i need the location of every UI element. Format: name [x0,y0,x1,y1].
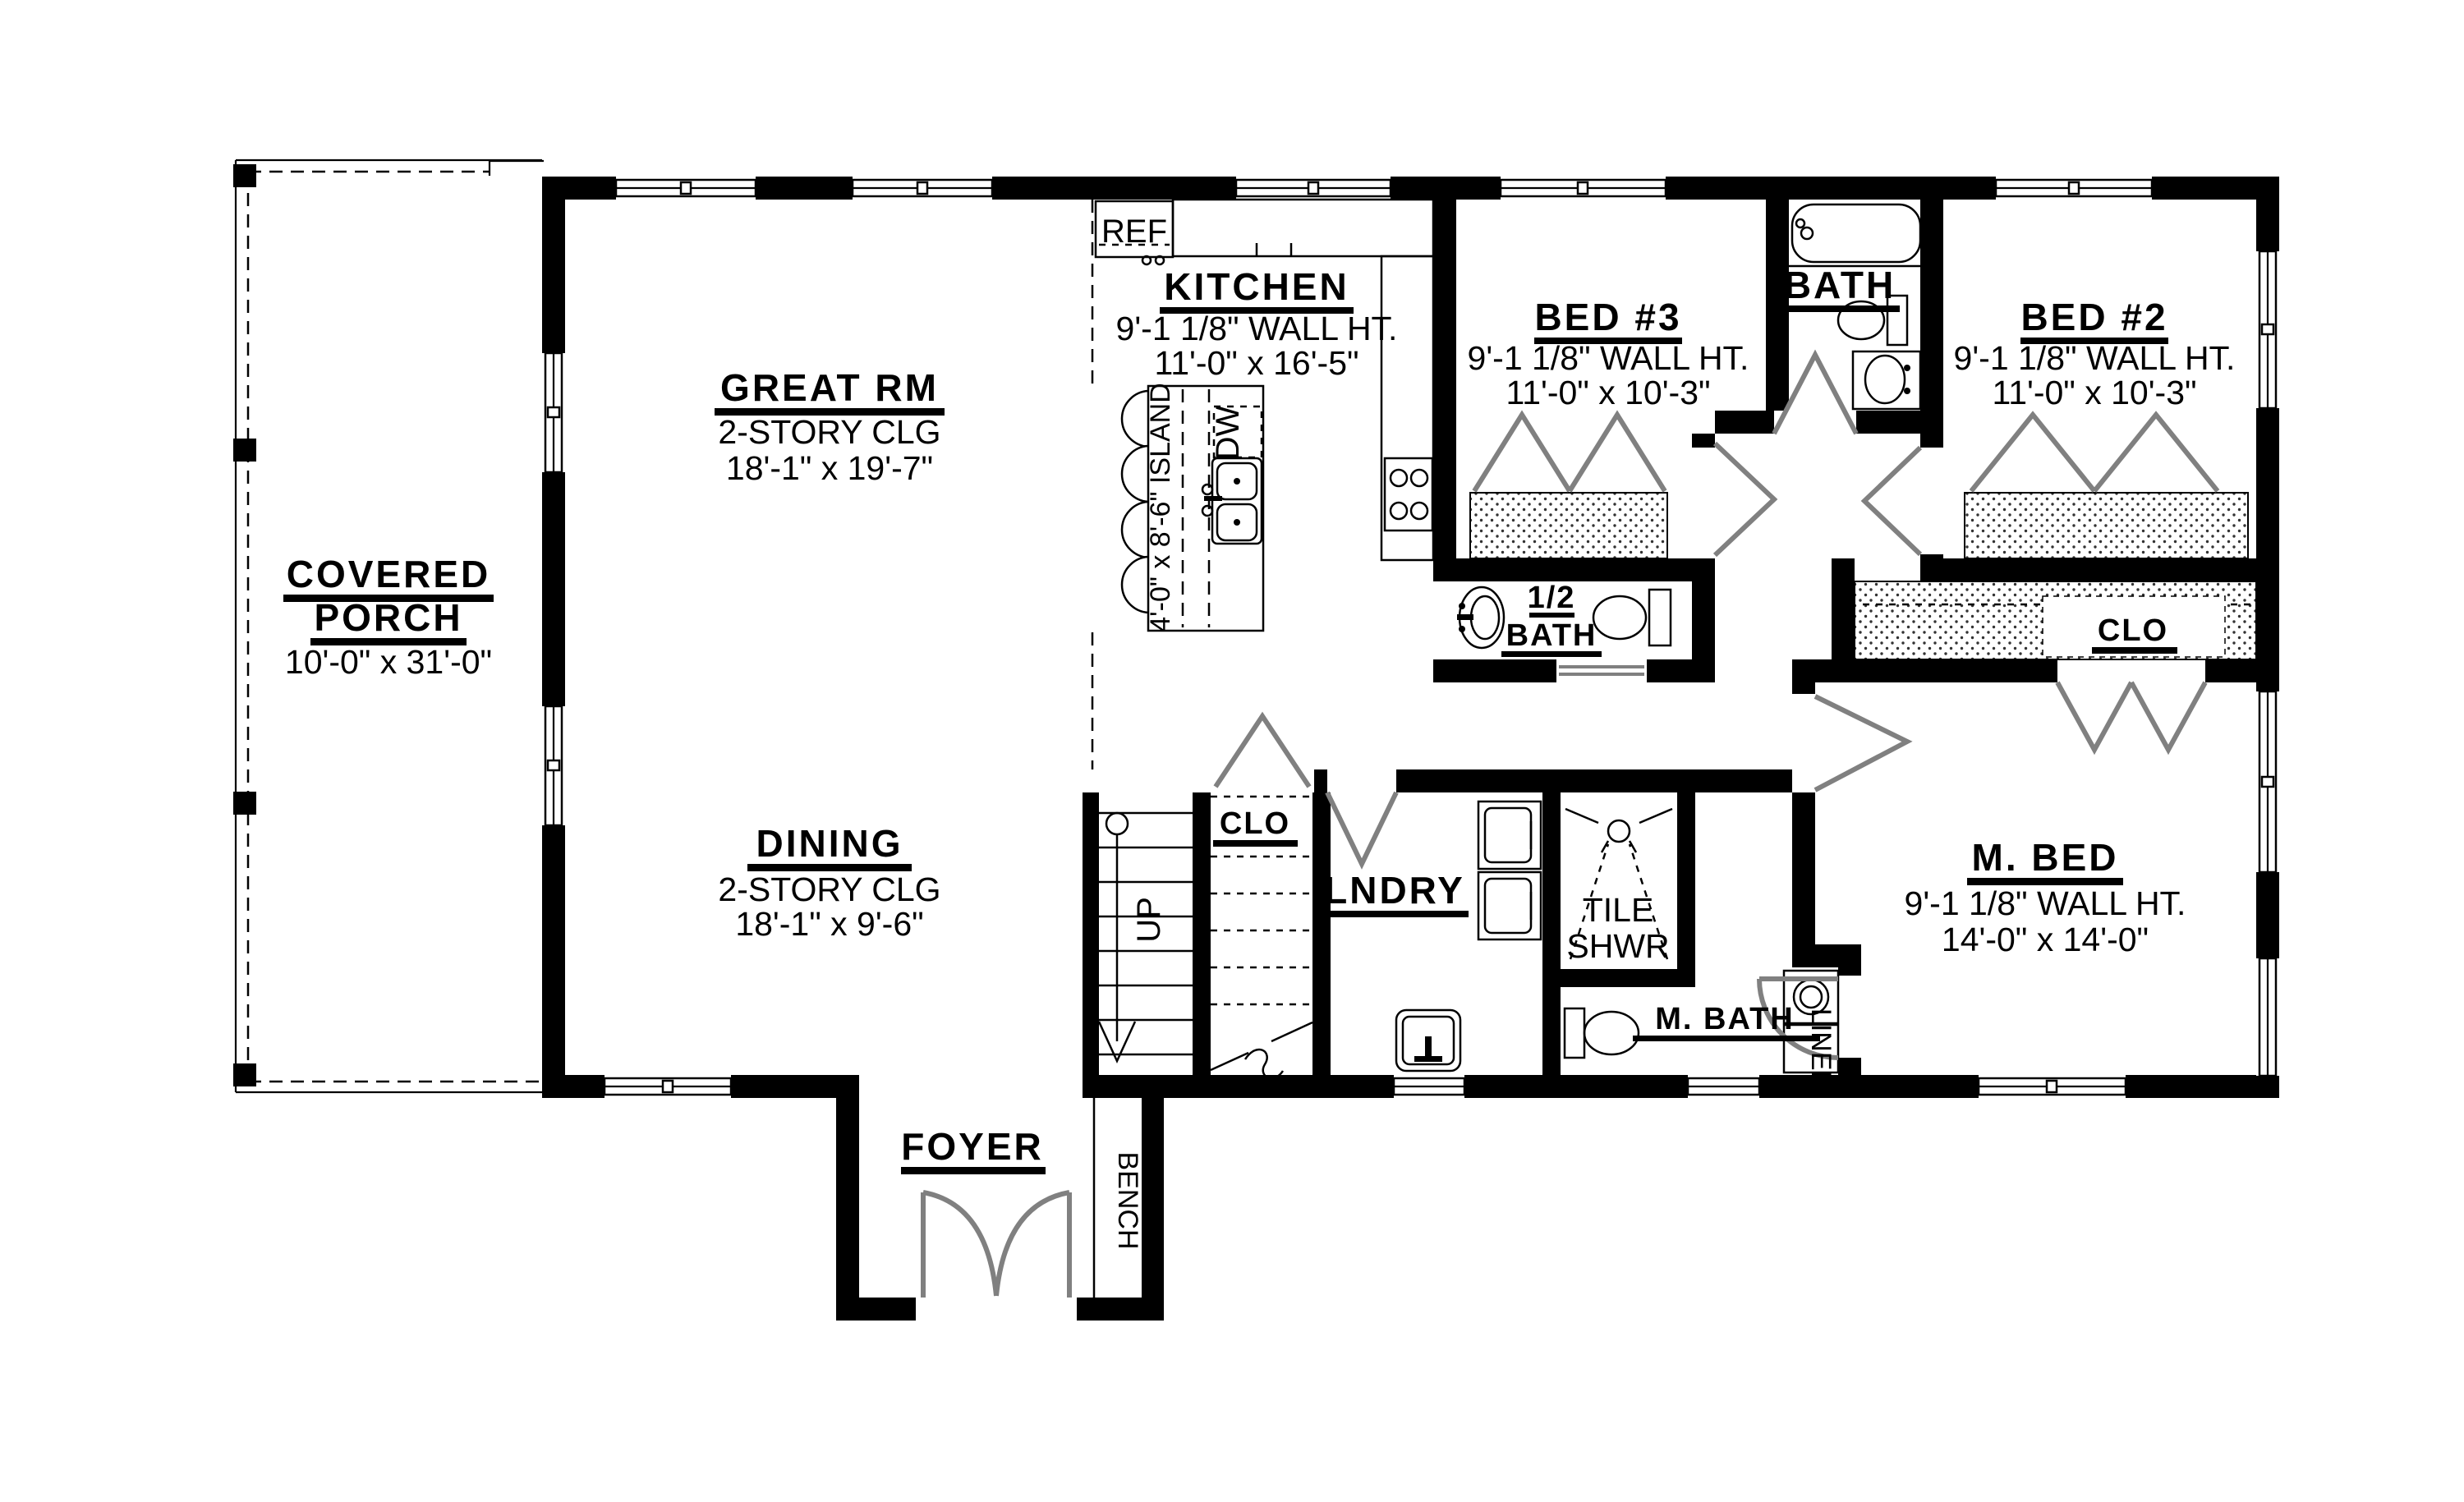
half-bath-label-1: 1/2 [1528,581,1576,615]
laundry-fixtures [1396,802,1541,1071]
great-rm-dims: 18'-1" x 19'-7" [726,449,933,487]
tile-shwr-label-2: SHWR [1566,927,1669,965]
window-lndry [1394,1075,1464,1098]
dining-label: DINING [756,822,903,865]
floor-plan-drawing: COVERED PORCH 10'-0" x 31'-0" GREAT RM 2… [0,0,2464,1502]
mbed-wall-ht: 9'-1 1/8" WALL HT. [1905,884,2186,922]
hall-clo-label: CLO [1220,806,1290,841]
mbed-label: M. BED [1972,836,2119,879]
dw-label: DW [1210,405,1246,460]
bed3-label: BED #3 [1534,296,1681,338]
entry-double-door [923,1192,1069,1298]
foyer-label: FOYER [901,1125,1043,1168]
up-arrow [1099,813,1135,1061]
half-bath-label-2: BATH [1506,618,1597,653]
window-mbed-bottom [1979,1075,2126,1098]
window-dining [605,1075,731,1098]
stove [1385,458,1432,531]
window-dining-left [542,706,565,825]
bed3-closet-door-2 [1570,415,1665,491]
window-great-rm-1 [616,177,756,200]
mbed-entry-door [1815,696,1907,790]
window-bed3 [1501,177,1666,200]
floor-plan-page: { "rooms": { "porch": {"line1": "COVERED… [0,0,2464,1502]
master-clo-label: CLO [2098,613,2168,648]
window-mbed-right-1 [2256,691,2279,872]
bed2-label: BED #2 [2020,296,2167,338]
lndry-label: LNDRY [1324,869,1465,912]
kitchen-wall-ht: 9'-1 1/8" WALL HT. [1116,310,1398,347]
window-kitchen [1236,177,1391,200]
mbath-toilet [1565,1008,1639,1058]
bed2-closet-door [1971,415,2094,491]
window-bed2-right [2256,251,2279,408]
bath-label: BATH [1784,264,1896,306]
bed2-closet-door-2 [2094,415,2218,491]
mbath-label: M. BATH [1655,1002,1795,1036]
bed3-closet-door [1474,415,1570,491]
dining-dims: 18'-1" x 9'-6" [735,905,923,943]
master-closet-door-2 [2131,682,2205,750]
washer [1478,802,1541,869]
half-bath-sink [1457,587,1504,648]
master-closet-door [2057,682,2131,750]
bench-label: BENCH [1112,1151,1143,1249]
island-label: 4'-0" x 8'-6" ISLAND [1145,383,1176,632]
window-great-rm-2 [853,177,992,200]
bath-vanity [1853,351,1920,409]
porch-label-2: PORCH [314,596,462,639]
great-rm-clg: 2-STORY CLG [718,413,940,451]
linen-label: LINEN [1805,1008,1837,1091]
bed3-wall-ht: 9'-1 1/8" WALL HT. [1468,339,1749,377]
tile-shwr-label-1: TILE [1583,891,1654,929]
window-great-rm-left [542,353,565,472]
dining-clg: 2-STORY CLG [718,870,940,908]
bed2-wall-ht: 9'-1 1/8" WALL HT. [1954,339,2236,377]
laundry-door [1327,792,1396,864]
great-rm-label: GREAT RM [720,366,939,409]
bathtub [1789,204,1920,266]
porch-posts [233,164,256,1086]
porch-dims: 10'-0" x 31'-0" [285,643,492,681]
mbed-dims: 14'-0" x 14'-0" [1942,921,2149,958]
up-label: UP [1131,897,1167,943]
bed2-entry-door [1864,448,1920,554]
dryer [1478,872,1541,939]
kitchen-label: KITCHEN [1164,265,1349,308]
window-mbed-right-2 [2256,958,2279,1076]
hall-closet-door [1216,716,1309,787]
kitchen-dims: 11'-0" x 16'-5" [1154,344,1358,382]
window-bed2 [1996,177,2152,200]
half-bath-toilet [1593,590,1671,645]
porch-label-1: COVERED [287,553,490,595]
ref-label: REF [1101,214,1167,250]
laundry-sink [1396,1010,1460,1071]
bed3-entry-door [1715,443,1774,555]
bed3-dims: 11'-0" x 10'-3" [1506,374,1710,411]
window-mbath [1688,1075,1759,1098]
bed2-dims: 11'-0" x 10'-3" [1992,374,2196,411]
